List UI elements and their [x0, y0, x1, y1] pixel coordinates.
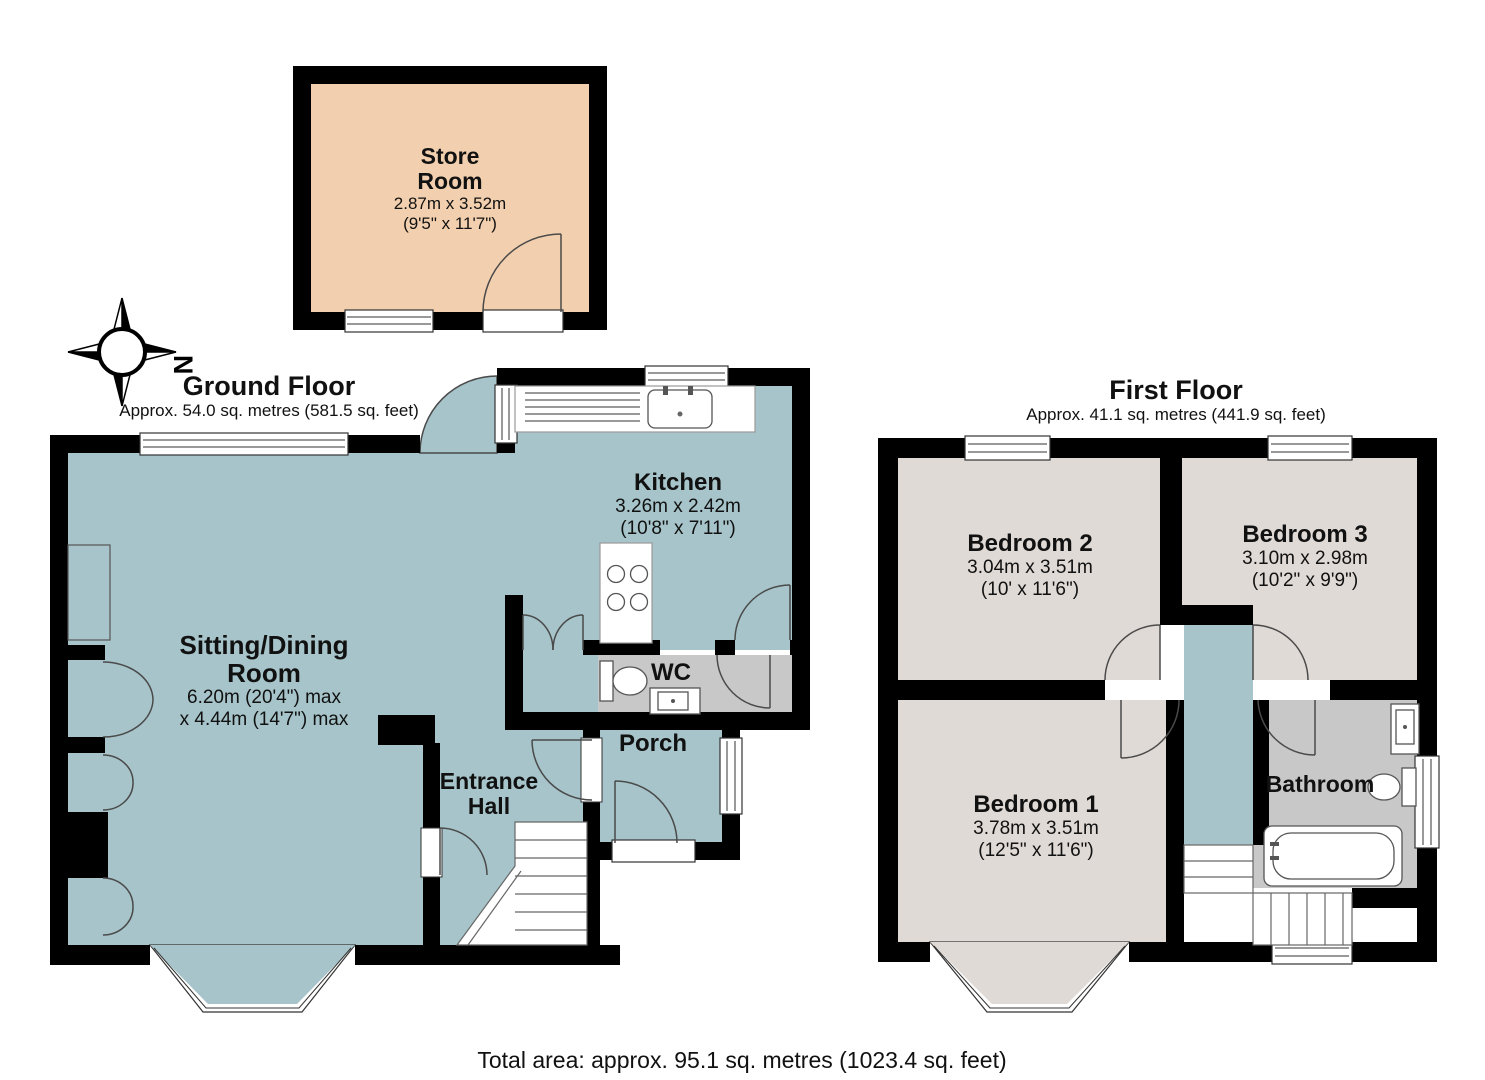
room-dims: 6.20m (20'4") max — [180, 687, 349, 709]
total-area-label: Total area: approx. 95.1 sq. metres (102… — [477, 1047, 1006, 1074]
room-name: Sitting/Dining — [180, 631, 349, 659]
kitchen-opening-door — [420, 376, 497, 453]
floor-title: First Floor — [1026, 375, 1326, 405]
room-name: Hall — [440, 794, 538, 819]
wc-label: WC — [651, 659, 691, 686]
bedroom2-window — [965, 436, 1050, 460]
kitchen-window-top — [645, 366, 728, 388]
chimney-breast — [68, 812, 108, 878]
room-dims-imperial: (10'8" x 7'11") — [615, 518, 741, 540]
kitchen-window-side — [495, 385, 517, 443]
floor-title: Ground Floor — [119, 371, 419, 401]
wc-basin — [650, 688, 700, 714]
bedroom3-window — [1268, 436, 1352, 460]
room-dims-imperial: (10' x 11'6") — [967, 579, 1093, 601]
room-dims-metric: 2.87m x 3.52m — [394, 194, 506, 214]
bedroom3-label: Bedroom 3 3.10m x 2.98m (10'2" x 9'9") — [1242, 521, 1368, 592]
kitchen-sink — [648, 386, 712, 428]
room-dims-metric: 3.26m x 2.42m — [615, 496, 741, 518]
room-dims-imperial: (12'5" x 11'6") — [973, 840, 1099, 862]
room-dims-imperial: (9'5" x 11'7") — [394, 214, 506, 234]
room-dims: x 4.44m (14'7") max — [180, 709, 349, 731]
floorplan-page: N — [0, 0, 1485, 1080]
room-dims-metric: 3.78m x 3.51m — [973, 818, 1099, 840]
bedroom1-bay-window — [930, 942, 1129, 1012]
kitchen-label: Kitchen 3.26m x 2.42m (10'8" x 7'11") — [615, 469, 741, 540]
room-name: Kitchen — [615, 469, 741, 496]
room-dims-metric: 3.04m x 3.51m — [967, 557, 1093, 579]
store-room-label: Store Room 2.87m x 3.52m (9'5" x 11'7") — [394, 144, 506, 234]
entrance-hall-label: Entrance Hall — [440, 769, 538, 819]
porch-label: Porch — [619, 730, 687, 757]
bathroom-label: Bathroom — [1266, 772, 1375, 797]
bathroom-bath — [1264, 826, 1402, 886]
store-room-window — [345, 310, 433, 332]
room-name: Bedroom 2 — [967, 530, 1093, 557]
ground-floor-title: Ground Floor Approx. 54.0 sq. metres (58… — [119, 371, 419, 421]
room-name: Entrance — [440, 769, 538, 794]
room-name: Room — [180, 659, 349, 687]
room-name: Bedroom 1 — [973, 791, 1099, 818]
bathroom-window — [1415, 756, 1439, 848]
floor-area: Approx. 54.0 sq. metres (581.5 sq. feet) — [119, 401, 419, 421]
floor-area: Approx. 41.1 sq. metres (441.9 sq. feet) — [1026, 405, 1326, 425]
sitting-room-bay-window — [150, 945, 355, 1012]
kitchen-hob — [600, 543, 652, 643]
bedroom2-label: Bedroom 2 3.04m x 3.51m (10' x 11'6") — [967, 530, 1093, 601]
landing-floor — [1184, 625, 1253, 845]
room-name: WC — [651, 659, 691, 686]
bathroom-basin — [1391, 704, 1419, 754]
porch-window — [720, 738, 742, 814]
room-name: Bathroom — [1266, 772, 1375, 797]
room-name: Room — [394, 169, 506, 194]
room-dims-metric: 3.10m x 2.98m — [1242, 548, 1368, 570]
sitting-room-window — [140, 433, 348, 455]
room-name: Store — [394, 144, 506, 169]
bedroom1-label: Bedroom 1 3.78m x 3.51m (12'5" x 11'6") — [973, 791, 1099, 862]
first-floor-title: First Floor Approx. 41.1 sq. metres (441… — [1026, 375, 1326, 425]
room-name: Bedroom 3 — [1242, 521, 1368, 548]
room-dims-imperial: (10'2" x 9'9") — [1242, 570, 1368, 592]
sitting-dining-label: Sitting/Dining Room 6.20m (20'4") max x … — [180, 631, 349, 731]
room-name: Porch — [619, 730, 687, 757]
ground-floor-plan — [50, 366, 810, 1012]
kitchen-counter — [515, 386, 755, 432]
